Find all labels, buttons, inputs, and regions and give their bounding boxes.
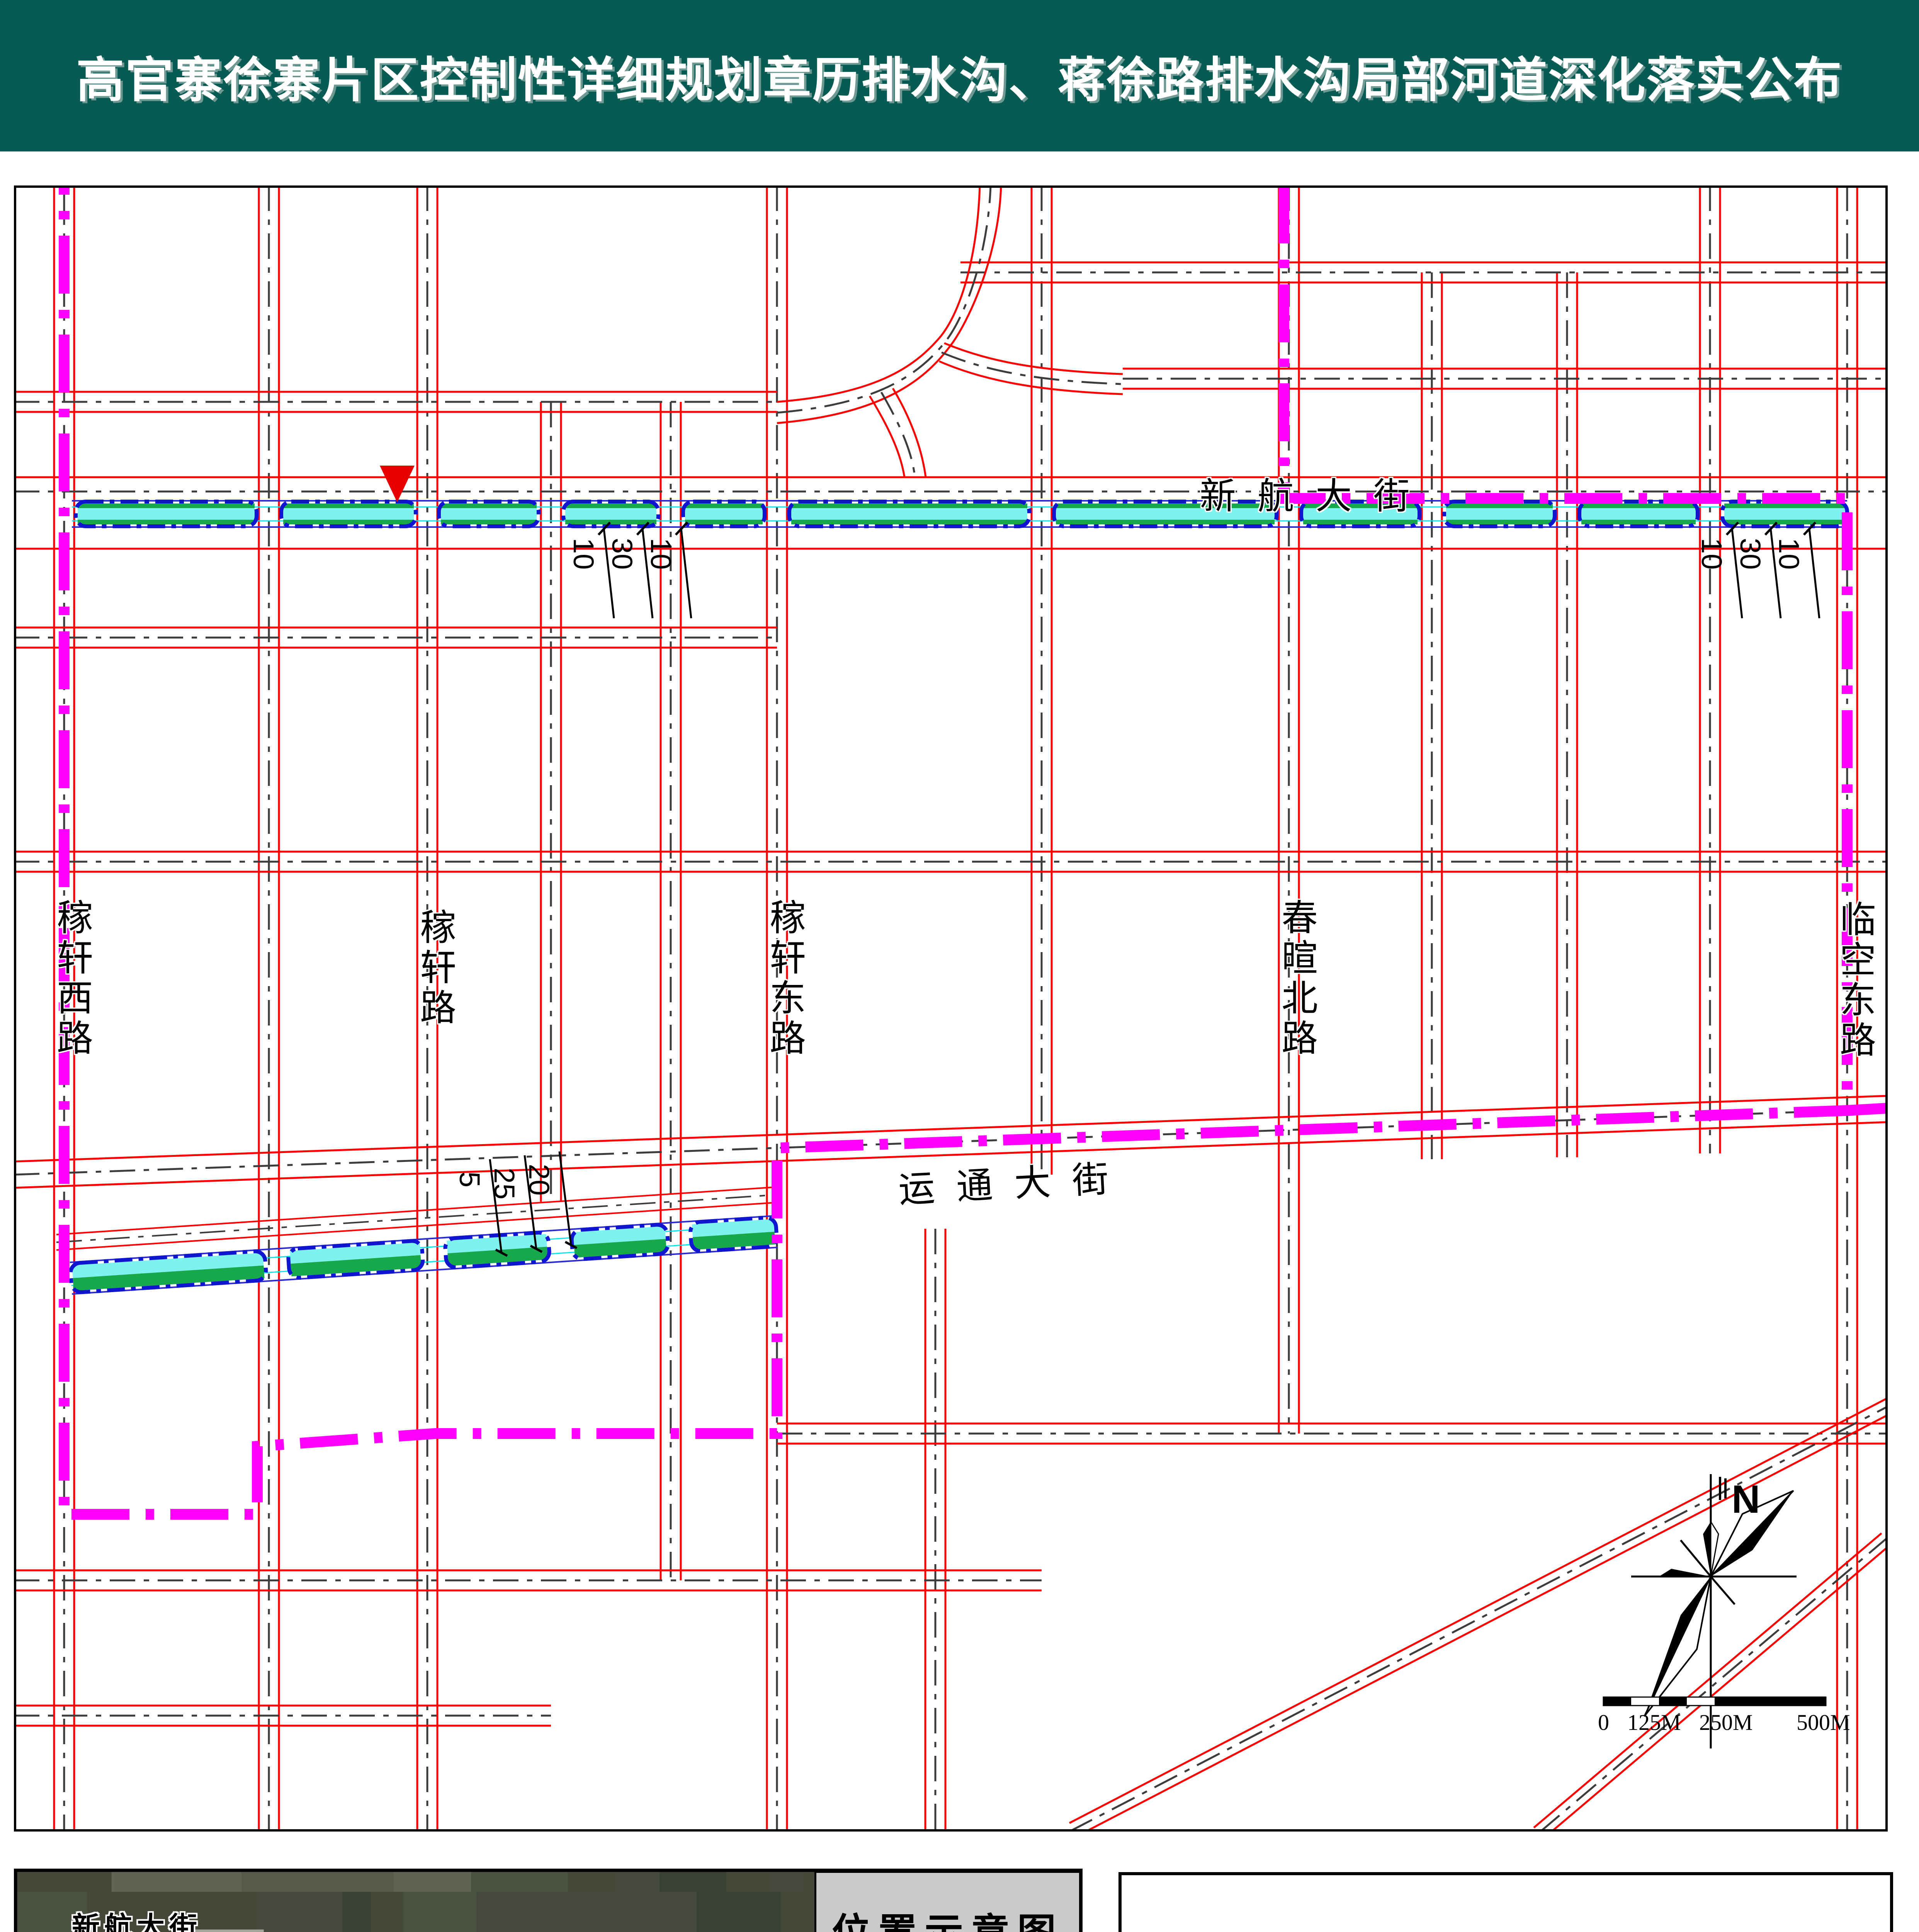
dim-label: 30 (606, 538, 639, 570)
inset-title-box: 位置示意图 (814, 1871, 1081, 1932)
header-bar: 高官寨徐寨片区控制性详细规划章历排水沟、蒋徐路排水沟局部河道深化落实公布 (0, 0, 1919, 151)
dim-label: 30 (1734, 538, 1767, 570)
dim-label: 5 (453, 1172, 486, 1187)
dim-label: 10 (644, 538, 677, 570)
dim-label: 10 (567, 538, 600, 570)
page-title: 高官寨徐寨片区控制性详细规划章历排水沟、蒋徐路排水沟局部河道深化落实公布 (76, 41, 1843, 111)
street-label-linkong-east: 临空东路 (1829, 900, 1881, 1061)
inset-title: 位置示意图 (832, 1901, 1064, 1932)
street-label-jiaxuan-west: 稼轩西路 (46, 898, 98, 1059)
scalebar-label: 125M (1627, 1709, 1681, 1735)
street-label-jiaxuan-east: 稼轩东路 (758, 898, 811, 1059)
inset-street-xinhang: 新航大街 (72, 1904, 202, 1932)
dim-label: 10 (1773, 538, 1805, 570)
north-label: N (1732, 1477, 1760, 1522)
legend-panel: 图 例 实线 虚线 地表水体保护控制线 地块范围 25 宽度（米） (1118, 1872, 1893, 1932)
dim-label: 25 (488, 1168, 521, 1199)
dim-label: 10 (1695, 538, 1728, 570)
dim-label: 20 (523, 1164, 556, 1196)
planning-map (14, 185, 1888, 1832)
announcement-poster: 高官寨徐寨片区控制性详细规划章历排水沟、蒋徐路排水沟局部河道深化落实公布 新航大… (0, 0, 1919, 1932)
scalebar-label: 500M (1797, 1709, 1850, 1735)
scale-bar (1603, 1697, 1826, 1706)
scalebar-label: 250M (1699, 1709, 1753, 1735)
scalebar-label: 0 (1598, 1709, 1609, 1735)
street-label-jiaxuan: 稼轩路 (409, 908, 461, 1029)
street-label-chunxuan-north: 春暄北路 (1270, 898, 1323, 1059)
street-label-xinhang: 新航大街 (1200, 467, 1431, 519)
